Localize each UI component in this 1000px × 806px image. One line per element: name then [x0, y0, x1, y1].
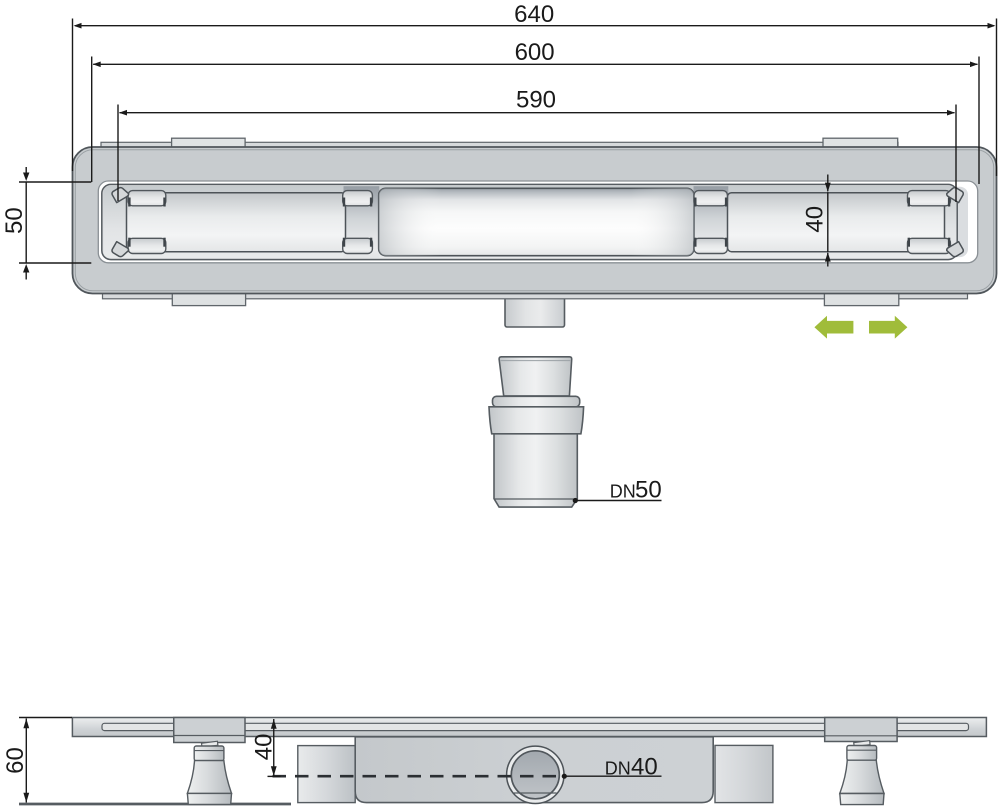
- svg-text:DN: DN: [610, 481, 636, 501]
- svg-text:600: 600: [515, 39, 555, 66]
- svg-text:50: 50: [1, 207, 28, 234]
- svg-text:640: 640: [514, 1, 554, 28]
- svg-text:40: 40: [631, 754, 658, 781]
- svg-text:DN: DN: [605, 759, 631, 779]
- svg-text:40: 40: [802, 206, 829, 233]
- svg-text:50: 50: [635, 476, 662, 503]
- svg-text:590: 590: [516, 87, 556, 114]
- svg-text:40: 40: [250, 734, 277, 761]
- svg-text:60: 60: [2, 747, 29, 774]
